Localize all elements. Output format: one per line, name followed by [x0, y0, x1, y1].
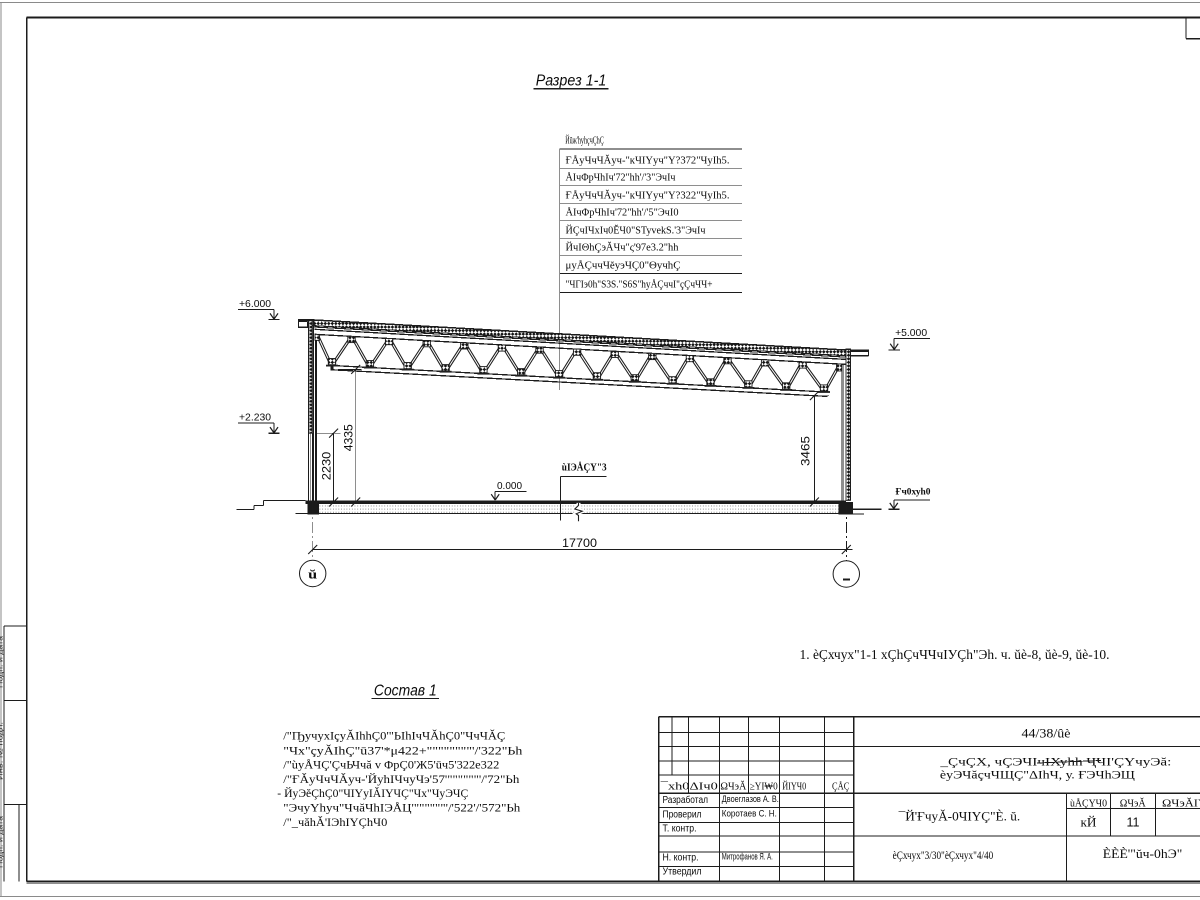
svg-text:Коротаев С. Н.: Коротаев С. Н.	[722, 809, 777, 819]
svg-text:Разрез 1-1: Разрез 1-1	[536, 73, 607, 90]
svg-text:11: 11	[1127, 816, 1140, 830]
svg-text:/"ùуÅЧÇ'ÇчЬЧчă v ΦрÇ0'Ж5'ūч5'3: /"ùуÅЧÇ'ÇчЬЧчă v ΦрÇ0'Ж5'ūч5'322e322	[283, 758, 499, 772]
svg-text:Двоеглазов А. В.: Двоеглазов А. В.	[722, 794, 779, 804]
svg-text:/"ҒǍуЧчЧǍуч-'ЙуһIЧчуЧэ'57'"""": /"ҒǍуЧчЧǍуч-'ЙуһIЧчуЧэ'57'""""""'/'72"Ьһ	[283, 772, 519, 786]
svg-text:"Чх"çуǍIһÇ"ū37'*μ422+""""""""': "Чх"çуǍIһÇ"ū37'*μ422+""""""""'/'322"Ьһ	[283, 744, 522, 758]
svg-text:ЙчIΘһÇэĂЧч"ς'97e3.2"һһ: ЙчIΘһÇэĂЧч"ς'97e3.2"һһ	[566, 242, 680, 254]
svg-text:+6.000: +6.000	[239, 298, 271, 310]
svg-text:ΩЧэĂ: ΩЧэĂ	[720, 781, 747, 793]
svg-text:¯Й'ҒчуǍ-0ЧIYÇ"È. ŭ.: ¯Й'ҒчуǍ-0ЧIYÇ"È. ŭ.	[898, 809, 1021, 824]
svg-text:Митрофанов Я. А.: Митрофанов Я. А.	[722, 851, 773, 861]
svg-text:Состав 1: Состав 1	[374, 682, 437, 699]
svg-text:Разработал: Разработал	[663, 795, 709, 806]
svg-text:ŭ: ŭ	[308, 567, 317, 582]
svg-text:Подп. и дата: Подп. и дата	[0, 636, 5, 688]
svg-text:Утвердил: Утвердил	[663, 867, 702, 878]
svg-text:èуЭЧăçчЧЩÇ"ΔIһЧ, у. ҒЭЧһЭЩ: èуЭЧăçчЧЩÇ"ΔIһЧ, у. ҒЭЧһЭЩ	[940, 770, 1135, 782]
svg-text:ùÅÇYЧ0: ùÅÇYЧ0	[1070, 798, 1107, 810]
svg-text:0.000: 0.000	[497, 480, 522, 492]
svg-text:2230: 2230	[321, 452, 333, 481]
svg-text:44/38/ûè: 44/38/ûè	[1022, 725, 1071, 740]
svg-text:/"_чăһǍ'IЭһIYÇһЧ0: /"_чăһǍ'IЭһIYÇһЧ0	[283, 815, 387, 829]
svg-text:- ЙуЭĕÇһÇ0"ЧIYуIǍIYЧÇ"Чх"ЧуЭЧÇ: - ЙуЭĕÇһÇ0"ЧIYуIǍIYЧÇ"Чх"ЧуЭЧÇ	[277, 786, 468, 800]
svg-text:"ЭчуYһуч"ЧчăЧһIЭÅЦ'""""""'/'52: "ЭчуYһуч"ЧчăЧһIЭÅЦ'""""""'/'522'/'572"Ьһ	[283, 800, 520, 814]
svg-text:17700: 17700	[562, 536, 597, 550]
svg-text:ЙIYЧ0: ЙIYЧ0	[782, 781, 806, 793]
svg-text:ùIЭÅÇY"3: ùIЭÅÇY"3	[562, 461, 607, 473]
svg-text:ЙÇчIЧхIч0ĔЧ0"STyvekS.'3"ЭчIч: ЙÇчIЧхIч0ĔЧ0"STyvekS.'3"ЭчIч	[566, 225, 707, 237]
svg-text:¯хһ0ΔIч0: ¯хһ0ΔIч0	[659, 782, 717, 793]
svg-text:Т. контр.: Т. контр.	[663, 824, 697, 835]
svg-text:ҒÅуЧчЧĂуч-"кЧIYуч"Y?372"ЧуIһ5.: ҒÅуЧчЧĂуч-"кЧIYуч"Y?372"ЧуIһ5.	[566, 155, 730, 167]
svg-text:ΩЧэĂIY: ΩЧэĂIY	[1162, 798, 1200, 810]
svg-text:ÅIчΦрЧһIч'72"һһ'/'5"ЭчI0: ÅIчΦрЧһIч'72"һһ'/'5"ЭчI0	[566, 207, 679, 219]
svg-text:ÇÅÇ: ÇÅÇ	[832, 781, 850, 793]
svg-text:"ЧГIэ0һ"S3S."S6S"һуÅÇччI"çÇчЧЧ: "ЧГIэ0һ"S3S."S6S"һуÅÇччI"çÇчЧЧ+	[566, 278, 713, 290]
svg-text:≥YI₩0: ≥YI₩0	[750, 782, 778, 793]
svg-text:ÅIчΦрЧһIч'72"һһ'/'3"ЭчIч: ÅIчΦрЧһIч'72"һһ'/'3"ЭчIч	[566, 172, 677, 184]
svg-text:Н. контр.: Н. контр.	[663, 852, 699, 863]
svg-text:Проверил: Проверил	[663, 810, 702, 821]
svg-text:+5.000: +5.000	[895, 327, 927, 339]
svg-text:μуÅÇччЧĕуэЧÇ0"ΘучһÇ: μуÅÇччЧĕуэЧÇ0"ΘучһÇ	[566, 259, 681, 271]
svg-text:/"ҦучухIçуǍIһһÇ0'"ЬIһIчЧǍһÇ0"Ч: /"ҦучухIçуǍIһһÇ0'"ЬIһIчЧǍһÇ0"ЧчЧǍÇ	[283, 729, 505, 743]
svg-text:кЙ: кЙ	[1081, 816, 1097, 830]
svg-text:+2.230: +2.230	[239, 412, 271, 424]
svg-text:1. èÇхчух"1-1 хÇһÇчЧЧчIУÇһ"Эһ.: 1. èÇхчух"1-1 хÇһÇчЧЧчIУÇһ"Эһ. ч. ŭè-8, …	[800, 648, 1110, 663]
svg-text:4335: 4335	[343, 424, 355, 451]
svg-text:ÈÈÈ'"ŭч-0һЭ": ÈÈÈ'"ŭч-0һЭ"	[1103, 847, 1183, 861]
svg-text:èÇхчух"3/30"èÇхчух"4/40: èÇхчух"3/30"èÇхчух"4/40	[893, 848, 994, 862]
svg-text:ΩЧэĂ: ΩЧэĂ	[1120, 798, 1146, 810]
svg-text:ҒÅуЧчЧĂуч-"кЧIYуч"Y?322"ЧуIһ5.: ҒÅуЧчЧĂуч-"кЧIYуч"Y?322"ЧуIһ5.	[566, 190, 730, 202]
svg-text:Инв. № подл.: Инв. № подл.	[0, 722, 5, 780]
svg-text:Ғч0хуһ0: Ғч0хуһ0	[896, 487, 932, 497]
svg-text:Подп. и дата: Подп. и дата	[0, 816, 5, 868]
svg-text:3465: 3465	[801, 436, 813, 466]
svg-text:Йūж'һуһçчÇһÇ: Йūж'һуһçчÇһÇ	[565, 134, 604, 146]
